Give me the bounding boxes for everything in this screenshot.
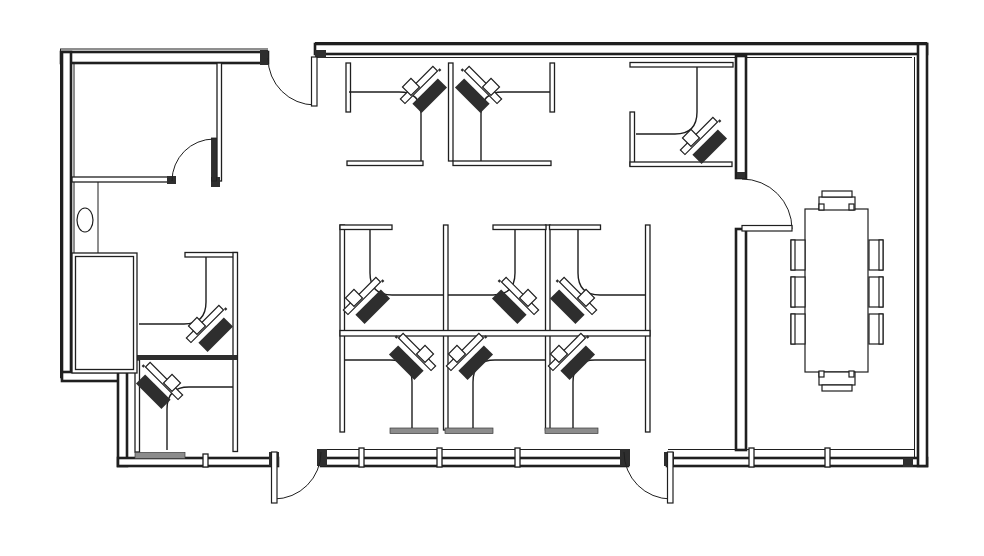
conference-chair-west-3-back (791, 314, 795, 344)
floor-plan-page (0, 0, 984, 556)
conference-chair-south-arm-2 (849, 371, 854, 377)
desk-cubicle3 (578, 229, 645, 295)
workstation-chair-A (395, 59, 453, 117)
cubicleA-bottom-partition (347, 161, 423, 166)
desk-cubicle5 (473, 360, 545, 428)
block-east-partition (646, 225, 651, 432)
conference-chair-east-2-back (879, 277, 883, 307)
cubicleC-left-partition (630, 112, 635, 166)
desk-cubicle1 (370, 229, 443, 295)
workstation-chair-D-base (188, 317, 205, 334)
workstation-chair-1-dot (381, 279, 385, 283)
room1-door-swing (172, 139, 214, 181)
conference-west-wall-upper (736, 56, 746, 178)
cubicle1-top-partition (340, 225, 392, 230)
desk-cubicleB (481, 92, 550, 161)
block-middle-divider (340, 331, 650, 337)
conference-door-swing (742, 179, 792, 229)
bottom-right-door-swing (624, 452, 671, 499)
workstation-chair-D (181, 298, 239, 356)
workstation-chair-2-base (520, 289, 537, 306)
workstation-chair-D-dot (224, 307, 228, 311)
room1-east-wall (217, 63, 222, 181)
storage-room-inner (76, 257, 134, 370)
conference-chair-east-3-back (879, 314, 883, 344)
left-wall (62, 52, 71, 378)
workstation-chair-1-base (345, 289, 362, 306)
workstation-chair-3 (544, 270, 602, 328)
workstation-chair-4-base (417, 345, 434, 362)
cubicleDE-east-partition (233, 253, 238, 452)
conference-table (805, 209, 868, 372)
wall-fixture-ellipse (77, 208, 93, 232)
workstation-chair-C (675, 110, 733, 168)
step-wall-vertical (118, 372, 127, 466)
bottom-right-door-leaf (668, 452, 674, 503)
desk-cubicle6 (573, 360, 645, 428)
workstation-chair-2-dot (498, 279, 502, 283)
workstation-chair-A-dot (438, 68, 442, 72)
conference-wall-cap (737, 172, 745, 178)
bottom-right-corner-nub (903, 458, 913, 467)
window-mullion-1 (203, 454, 208, 467)
conference-chair-south-back (822, 385, 852, 391)
room1-south-wall (72, 177, 172, 182)
bottom-wall-right (667, 458, 927, 466)
workstation-chair-1 (338, 270, 396, 328)
block-shared-partition-2 (546, 225, 551, 430)
conference-chair-west-1-back (791, 240, 795, 270)
cubicle5-bottom-bar (445, 428, 493, 434)
window-mullion-4 (515, 448, 520, 467)
floor-plan-canvas (0, 0, 984, 556)
cubicle6-bottom-bar (545, 428, 598, 434)
workstation-chair-3-dot (556, 279, 560, 283)
cubicle3-top-partition (550, 225, 601, 230)
cubicle4-bottom-bar (390, 428, 438, 434)
bottom-wall-left (118, 458, 278, 466)
block-shared-partition-1 (444, 225, 449, 430)
top-door-jamb-left (260, 50, 268, 65)
right-wall (918, 44, 927, 466)
cubicleC-top-partition (630, 63, 733, 68)
workstation-chair-E-dot (142, 364, 146, 368)
cubicleC-bottom-partition (630, 162, 732, 167)
workstation-chair-5-base (448, 345, 465, 362)
top-left-wall (61, 52, 268, 63)
desk-cubicleA (349, 92, 421, 161)
bottom-left-door-leaf (272, 452, 278, 503)
conference-chair-north-arm-2 (849, 204, 854, 210)
workstation-chair-3-base (578, 289, 595, 306)
conference-door-leaf (742, 226, 792, 232)
top-wall (315, 44, 927, 54)
room1-door-leaf (212, 138, 217, 181)
conference-chair-north-back (822, 191, 852, 197)
cubicle2-top-partition (493, 225, 546, 230)
cubicleB-right-partition (550, 63, 555, 112)
conference-west-wall-lower (736, 229, 746, 450)
cubicleB-bottom-partition (453, 161, 551, 166)
conference-chair-east-1-back (879, 240, 883, 270)
workstation-chair-C-dot (718, 119, 722, 123)
top-entry-door-leaf (312, 57, 318, 106)
cubicleD-top-partition (185, 253, 237, 258)
workstation-chair-6-base (550, 345, 567, 362)
block-west-partition (340, 225, 345, 432)
desk-cubicleC (636, 67, 697, 134)
window-mullion-3 (437, 448, 442, 467)
conference-chair-west-2-back (791, 277, 795, 307)
window-mullion-5 (749, 448, 754, 467)
cubicleA-left-partition (346, 63, 351, 112)
desk-cubicle4 (345, 360, 412, 428)
window-mullion-2 (359, 448, 364, 467)
desk-cubicleD (139, 257, 206, 324)
cubicleAB-shared-partition (449, 63, 454, 161)
workstation-chair-B-dot (461, 68, 465, 72)
bottom-left-door-swing (274, 452, 321, 499)
top-entry-door-swing (268, 58, 315, 105)
conference-chair-south-arm-1 (819, 371, 824, 377)
cubicleDE-divider-bar (136, 355, 237, 360)
window-mullion-6 (825, 448, 830, 467)
bottom-left-door-jamb-b (317, 449, 327, 466)
room1-door-jamb (167, 176, 176, 184)
conference-chair-north-arm-1 (819, 204, 824, 210)
bottom-wall-mid (321, 458, 628, 466)
workstation-chair-B (449, 59, 507, 117)
cubicleE-bottom-bar (135, 453, 185, 459)
cubicleE-left-partition (135, 360, 140, 452)
